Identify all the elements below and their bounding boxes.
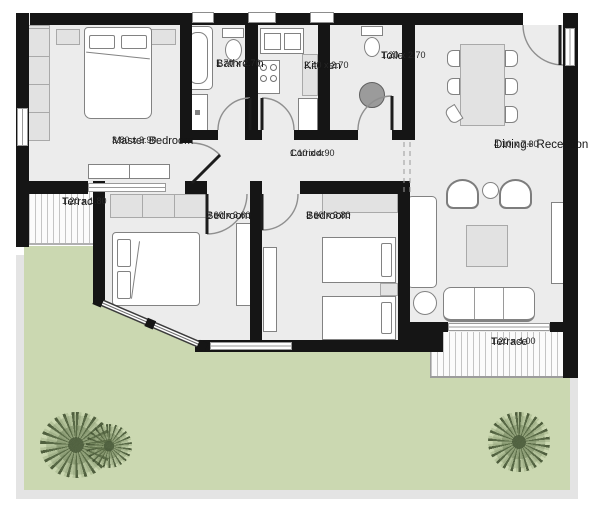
floor-plan: Master Bedroom 3.80 x 3.90 Bathroom 1.70… <box>0 0 600 522</box>
entrance-door-arc <box>523 25 563 65</box>
room-dims: 1.20 x 2.70 <box>381 50 426 61</box>
room-dims: 1.20 x 1.80 <box>62 196 107 207</box>
toilet-door-arc <box>358 96 392 130</box>
room-dims: 4.10 x 7.30 <box>494 139 539 150</box>
master-door-leaf <box>192 155 220 183</box>
room-dims: 3.60 x 3.80 <box>306 210 351 221</box>
room-dims: 1.70 x 2.70 <box>216 58 261 69</box>
room-dims: 1.10 x 4.90 <box>290 148 335 159</box>
kitchen-door-arc <box>262 98 294 130</box>
room-dims: 2.40 x 2.70 <box>304 60 349 71</box>
room-dims: 3.80 x 3.90 <box>112 135 157 146</box>
bathroom-door-arc <box>218 98 250 130</box>
room-dims: 1.20 x 4.00 <box>491 336 536 347</box>
master-door-arc <box>192 143 220 155</box>
bedroom2-door-arc <box>262 194 298 230</box>
tree-icon <box>86 424 132 468</box>
tree-icon <box>488 412 550 472</box>
room-dims: 3.60 x 3.60 <box>206 210 251 221</box>
